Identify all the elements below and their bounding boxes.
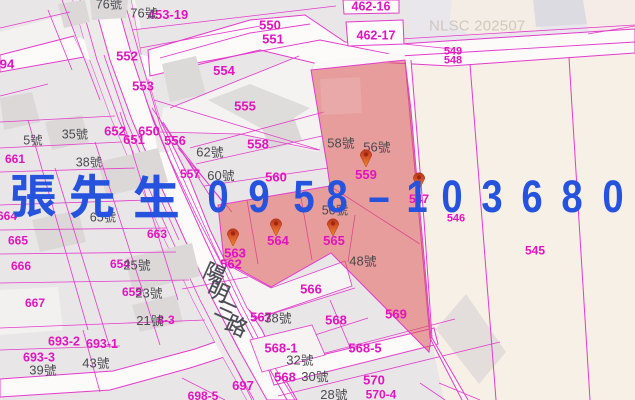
- svg-text:550: 550: [259, 18, 281, 33]
- svg-text:38: 38: [76, 156, 90, 170]
- svg-text:–: –: [368, 171, 389, 222]
- svg-text:28: 28: [320, 387, 334, 400]
- svg-text:0: 0: [441, 171, 462, 222]
- svg-text:62: 62: [196, 145, 210, 160]
- svg-text:665: 665: [8, 234, 28, 248]
- svg-text:1: 1: [406, 171, 427, 222]
- svg-text:76: 76: [96, 0, 110, 12]
- svg-text:8: 8: [326, 171, 347, 222]
- svg-text:562: 562: [220, 257, 242, 272]
- svg-text:568-5: 568-5: [348, 341, 381, 356]
- svg-text:48: 48: [349, 254, 363, 269]
- svg-text:556: 556: [164, 133, 186, 148]
- svg-text:551: 551: [262, 32, 284, 47]
- svg-text:548: 548: [444, 54, 462, 66]
- svg-text:462-16: 462-16: [352, 0, 391, 13]
- svg-text:6: 6: [521, 171, 542, 222]
- svg-text:43: 43: [82, 356, 96, 371]
- svg-text:NLSC 202507: NLSC 202507: [429, 18, 525, 35]
- svg-text:0: 0: [207, 171, 228, 222]
- svg-text:555: 555: [234, 99, 256, 114]
- svg-text:545: 545: [525, 244, 545, 258]
- svg-text:8-3: 8-3: [157, 313, 175, 327]
- svg-text:553: 553: [132, 79, 154, 94]
- svg-text:94: 94: [0, 57, 15, 72]
- svg-text:661: 661: [5, 152, 25, 166]
- svg-text:651: 651: [123, 132, 145, 147]
- svg-text:570-4: 570-4: [366, 388, 397, 400]
- svg-text:667: 667: [25, 296, 45, 310]
- svg-text:552: 552: [116, 49, 138, 64]
- svg-text:693-2: 693-2: [48, 334, 80, 348]
- svg-text:697: 697: [232, 378, 254, 393]
- svg-text:566: 566: [300, 282, 322, 297]
- svg-text:666: 666: [11, 259, 31, 273]
- svg-text:76: 76: [130, 6, 144, 21]
- svg-text:557: 557: [180, 167, 200, 181]
- svg-text:569: 569: [385, 307, 407, 322]
- svg-text:25: 25: [123, 258, 137, 273]
- svg-text:568: 568: [325, 313, 347, 328]
- svg-text:8: 8: [561, 171, 582, 222]
- svg-text:558: 558: [247, 137, 269, 152]
- svg-text:570: 570: [363, 373, 385, 388]
- svg-text:554: 554: [213, 63, 235, 78]
- svg-text:30: 30: [301, 369, 315, 384]
- svg-text:698-5: 698-5: [188, 389, 219, 400]
- svg-text:32: 32: [286, 353, 300, 368]
- svg-text:5: 5: [293, 171, 314, 222]
- svg-text:3: 3: [481, 171, 502, 222]
- svg-text:568: 568: [274, 370, 296, 385]
- svg-text:38: 38: [264, 311, 278, 326]
- svg-text:0: 0: [602, 171, 623, 222]
- svg-text:35: 35: [62, 128, 76, 142]
- svg-text:462-17: 462-17: [357, 28, 396, 42]
- svg-text:39: 39: [29, 363, 43, 378]
- svg-text:564: 564: [267, 233, 289, 248]
- svg-text:21: 21: [136, 313, 150, 328]
- svg-text:565: 565: [323, 233, 345, 248]
- svg-text:58: 58: [327, 136, 341, 151]
- svg-text:5: 5: [23, 134, 30, 148]
- svg-text:652: 652: [104, 124, 126, 139]
- svg-text:9: 9: [248, 171, 269, 222]
- svg-text:23: 23: [135, 286, 149, 301]
- svg-text:663: 663: [147, 227, 167, 241]
- svg-text:693-1: 693-1: [86, 337, 118, 351]
